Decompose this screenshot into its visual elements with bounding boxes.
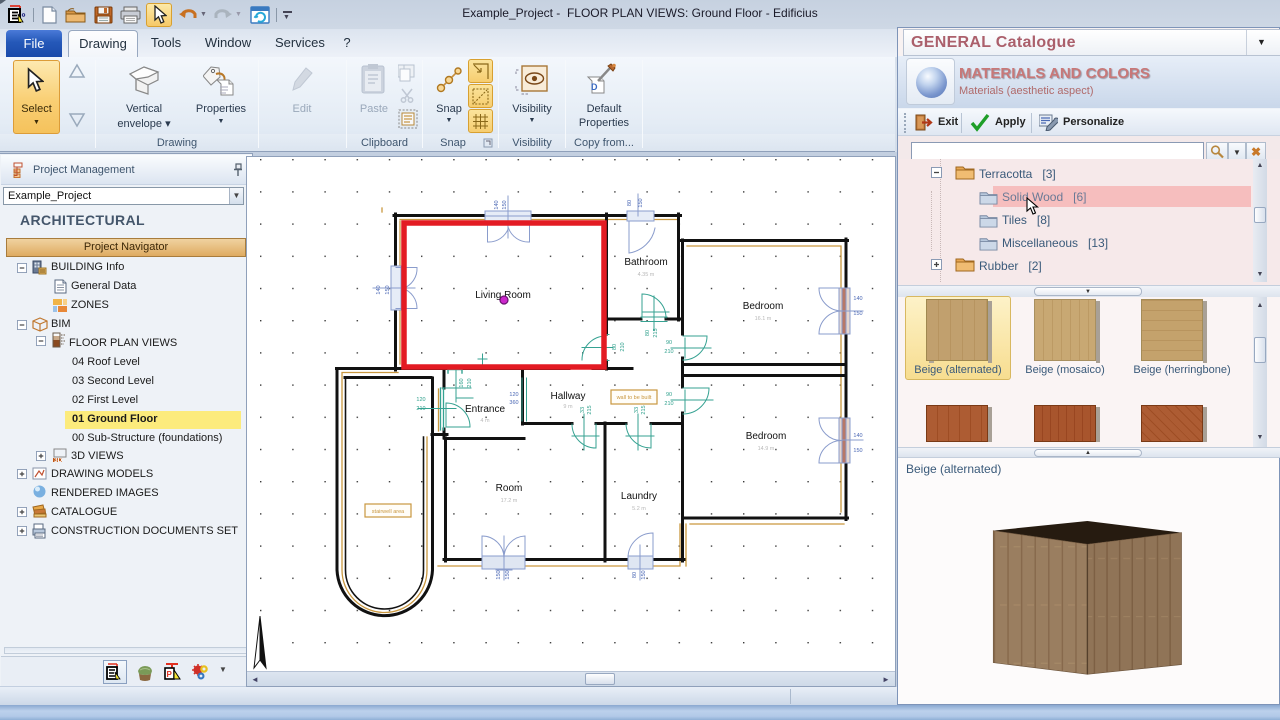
svg-text:215: 215 [653, 328, 659, 337]
svg-text:33: 33 [580, 407, 586, 413]
svg-text:Room: Room [496, 483, 523, 494]
svg-text:215: 215 [641, 405, 647, 414]
svg-text:210: 210 [664, 349, 673, 355]
svg-text:215: 215 [587, 405, 593, 414]
svg-text:210: 210 [416, 406, 425, 412]
svg-text:150: 150 [641, 570, 647, 579]
svg-text:150: 150 [853, 448, 862, 454]
svg-text:150: 150 [496, 570, 502, 579]
svg-text:210: 210 [664, 401, 673, 407]
svg-text:150: 150 [505, 570, 511, 579]
svg-text:Bathroom: Bathroom [624, 257, 667, 268]
svg-text:80: 80 [612, 344, 618, 350]
svg-text:210: 210 [620, 342, 626, 351]
svg-text:Bedroom: Bedroom [743, 301, 784, 312]
svg-text:150: 150 [853, 311, 862, 317]
svg-text:90: 90 [666, 392, 672, 398]
svg-text:140: 140 [376, 285, 382, 294]
svg-text:160: 160 [459, 378, 465, 387]
svg-text:wall to be built: wall to be built [616, 395, 652, 401]
svg-text:5.2 m: 5.2 m [632, 506, 646, 512]
svg-text:80: 80 [627, 200, 633, 206]
svg-text:140: 140 [494, 200, 500, 209]
svg-text:14.9 m: 14.9 m [758, 446, 775, 452]
svg-text:stairwell area: stairwell area [372, 509, 405, 515]
svg-text:P: P [167, 670, 173, 679]
svg-text:120: 120 [416, 397, 425, 403]
svg-text:Bedroom: Bedroom [746, 431, 787, 442]
svg-text:150: 150 [502, 200, 508, 209]
svg-text:120: 120 [509, 392, 518, 398]
svg-text:80: 80 [632, 572, 638, 578]
svg-text:210: 210 [467, 378, 473, 387]
svg-text:Hallway: Hallway [550, 391, 585, 402]
svg-text:80: 80 [645, 330, 651, 336]
svg-text:140: 140 [853, 296, 862, 302]
svg-text:3D: 3D [54, 457, 63, 463]
svg-text:9 m: 9 m [563, 404, 573, 410]
svg-text:33: 33 [634, 407, 640, 413]
svg-text:16.1 m: 16.1 m [755, 316, 772, 322]
svg-text:140: 140 [853, 433, 862, 439]
svg-text:Entrance: Entrance [465, 404, 505, 415]
svg-text:4.35 m: 4.35 m [638, 272, 655, 278]
svg-text:D: D [591, 82, 598, 92]
svg-text:4 m: 4 m [480, 418, 490, 424]
svg-text:150: 150 [385, 285, 391, 294]
svg-text:Laundry: Laundry [621, 491, 657, 502]
svg-text:90: 90 [666, 340, 672, 346]
svg-text:17.2 m: 17.2 m [501, 498, 518, 504]
svg-text:150: 150 [638, 198, 644, 207]
svg-text:360: 360 [509, 400, 518, 406]
